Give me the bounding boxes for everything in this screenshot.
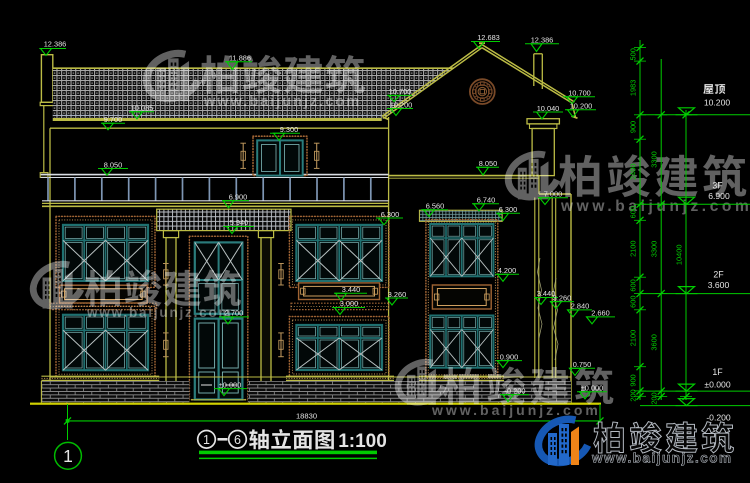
svg-text:1:100: 1:100 <box>338 431 387 452</box>
svg-text:3300: 3300 <box>650 151 659 167</box>
svg-text:-0.200: -0.200 <box>505 386 526 395</box>
svg-text:7.000: 7.000 <box>544 190 563 199</box>
svg-text:500: 500 <box>629 48 638 60</box>
svg-text:600: 600 <box>629 206 638 218</box>
svg-text:10400: 10400 <box>675 245 684 266</box>
svg-text:3.600: 3.600 <box>708 280 730 290</box>
svg-text:200: 200 <box>629 389 638 401</box>
svg-text:±0.000: ±0.000 <box>219 380 242 389</box>
svg-text:3.260: 3.260 <box>388 290 407 299</box>
svg-text:12.386: 12.386 <box>44 39 67 48</box>
svg-text:10.085: 10.085 <box>131 104 154 113</box>
svg-text:10.200: 10.200 <box>570 102 593 111</box>
svg-text:6.560: 6.560 <box>426 202 445 211</box>
svg-text:-0.200: -0.200 <box>706 412 731 422</box>
svg-text:www.baijunjz.com: www.baijunjz.com <box>86 305 232 320</box>
svg-text:3.440: 3.440 <box>342 285 361 294</box>
svg-text:www.baijunjz.com: www.baijunjz.com <box>591 451 733 466</box>
svg-text:900: 900 <box>629 374 638 386</box>
svg-text:12.386: 12.386 <box>531 36 554 45</box>
svg-text:2100: 2100 <box>629 330 638 346</box>
svg-text:4.200: 4.200 <box>498 266 517 275</box>
svg-text:18830: 18830 <box>296 412 317 421</box>
svg-text:10.700: 10.700 <box>568 89 591 98</box>
svg-text:2400: 2400 <box>629 163 638 179</box>
svg-text:3F: 3F <box>712 181 723 191</box>
svg-text:600: 600 <box>629 296 638 308</box>
svg-text:2.700: 2.700 <box>225 309 244 318</box>
svg-text:3.000: 3.000 <box>340 299 359 308</box>
svg-text:0.750: 0.750 <box>573 360 592 369</box>
svg-text:8.050: 8.050 <box>479 159 498 168</box>
svg-text:±0.000: ±0.000 <box>704 379 730 389</box>
svg-text:6.740: 6.740 <box>477 196 496 205</box>
svg-text:2.840: 2.840 <box>571 302 590 311</box>
svg-text:1983: 1983 <box>629 80 638 96</box>
svg-text:1F: 1F <box>712 367 723 377</box>
svg-text:±0.000: ±0.000 <box>581 384 604 393</box>
svg-text:3.260: 3.260 <box>553 293 572 302</box>
svg-text:10.200: 10.200 <box>704 98 731 108</box>
svg-text:3600: 3600 <box>650 334 659 350</box>
svg-text:600: 600 <box>629 279 638 291</box>
svg-text:www.baijunjz.com: www.baijunjz.com <box>431 402 601 418</box>
svg-text:2.660: 2.660 <box>591 309 610 318</box>
svg-text:www.baijunjz.com: www.baijunjz.com <box>203 94 361 110</box>
svg-text:3300: 3300 <box>650 241 659 257</box>
svg-text:1: 1 <box>203 433 210 447</box>
svg-text:2F: 2F <box>713 270 724 280</box>
svg-text:2100: 2100 <box>629 240 638 256</box>
svg-text:1: 1 <box>63 446 73 466</box>
svg-text:200: 200 <box>650 392 659 404</box>
svg-text:6.900: 6.900 <box>708 191 730 201</box>
svg-text:6: 6 <box>234 433 241 447</box>
svg-text:6.900: 6.900 <box>229 192 248 201</box>
svg-text:900: 900 <box>629 121 638 133</box>
svg-text:12.683: 12.683 <box>477 33 500 42</box>
svg-text:6.300: 6.300 <box>499 205 518 214</box>
svg-text:5.940: 5.940 <box>230 218 249 227</box>
svg-text:0.900: 0.900 <box>500 352 519 361</box>
